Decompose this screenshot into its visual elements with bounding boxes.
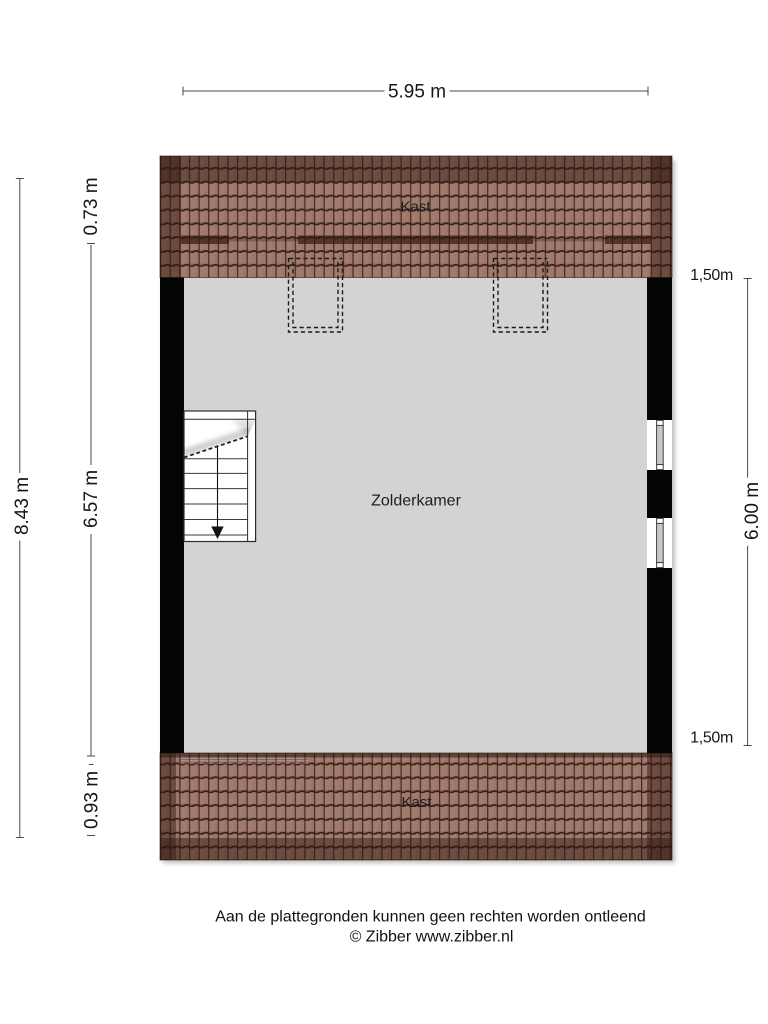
svg-text:1,50m: 1,50m xyxy=(690,730,733,747)
svg-text:0.93 m: 0.93 m xyxy=(82,771,103,829)
svg-text:6.57 m: 6.57 m xyxy=(81,470,102,528)
svg-text:1,50m: 1,50m xyxy=(690,267,733,284)
svg-text:5.95 m: 5.95 m xyxy=(388,82,446,103)
svg-text:Kast: Kast xyxy=(400,199,431,216)
svg-text:6.00 m: 6.00 m xyxy=(742,482,763,540)
svg-text:Aan de plattegronden kunnen ge: Aan de plattegronden kunnen geen rechten… xyxy=(215,909,646,926)
svg-text:© Zibber www.zibber.nl: © Zibber www.zibber.nl xyxy=(350,929,514,946)
svg-text:Zolderkamer: Zolderkamer xyxy=(371,493,461,510)
svg-text:0.73 m: 0.73 m xyxy=(81,177,102,235)
svg-text:Kast: Kast xyxy=(401,794,432,811)
svg-text:8.43 m: 8.43 m xyxy=(12,477,33,535)
